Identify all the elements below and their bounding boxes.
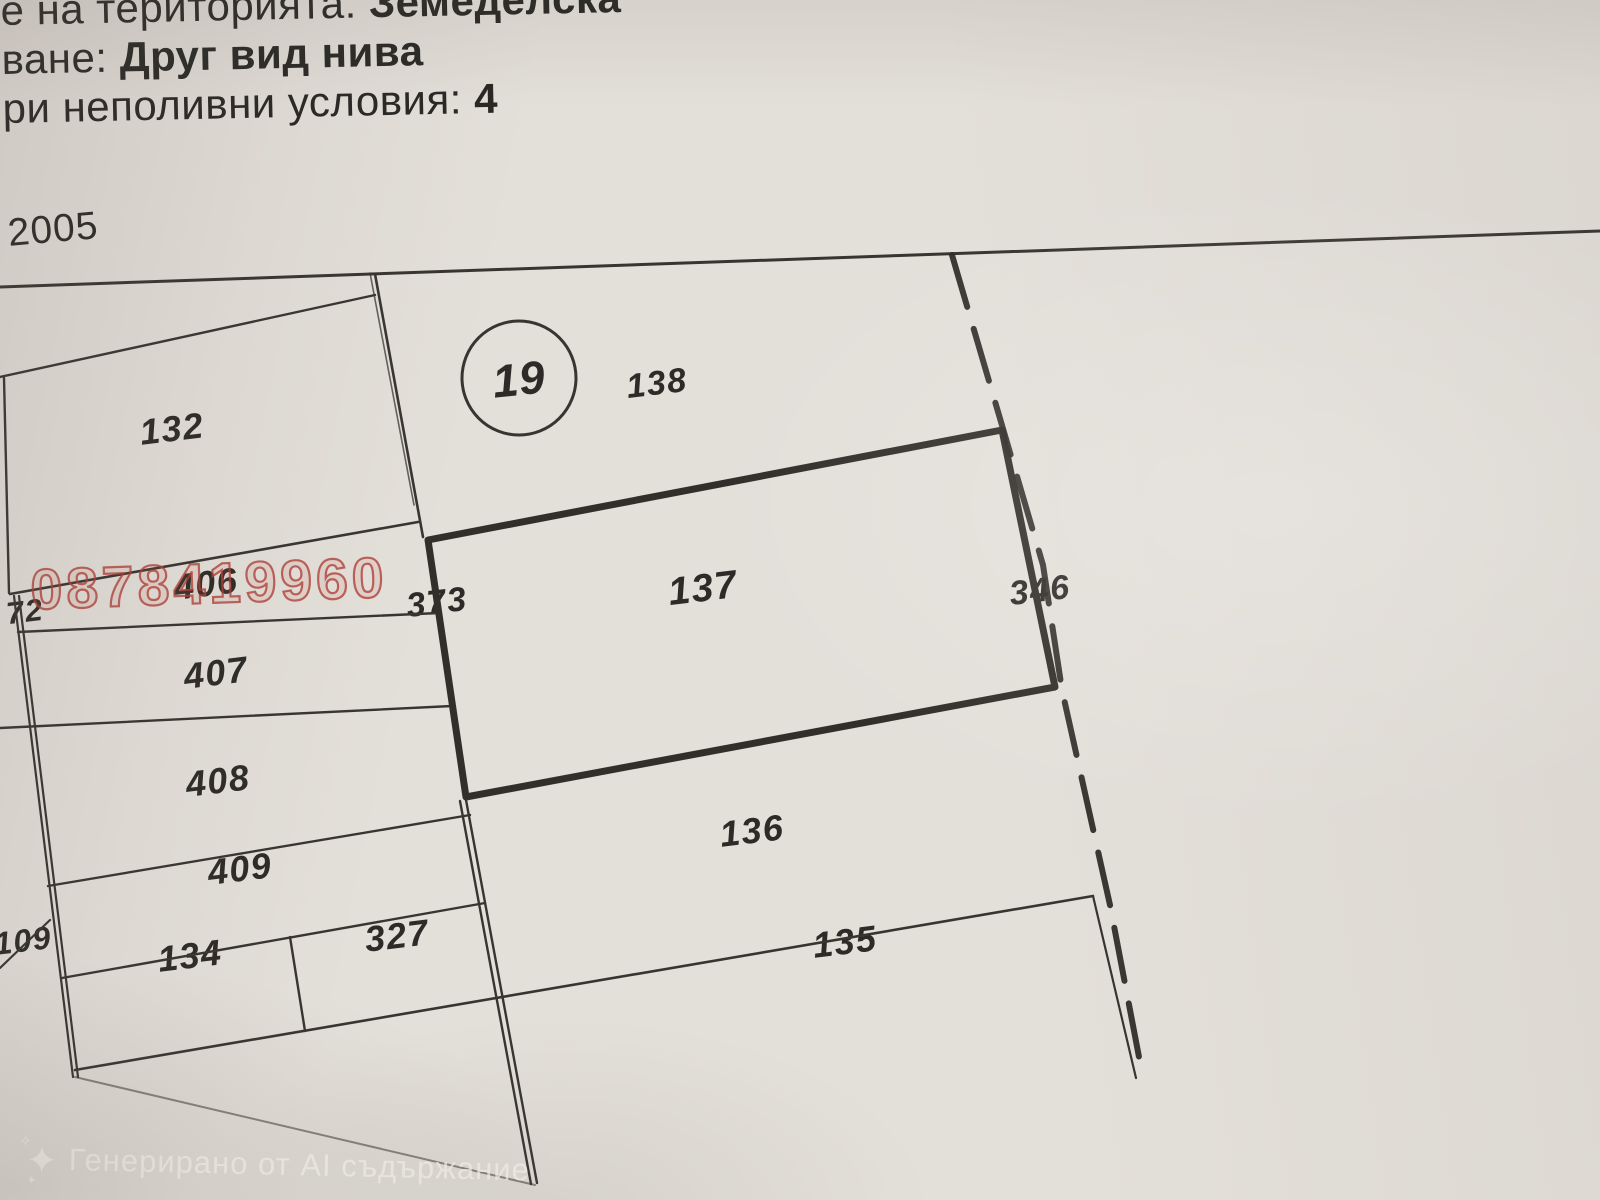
parcel-number-label: 327 xyxy=(362,911,431,961)
parcel-number-label: 346 xyxy=(1007,568,1073,614)
header-text-segment: 4 xyxy=(474,75,499,122)
parcel-number-label: 134 xyxy=(155,931,224,981)
document-header: е на територията: Земеделскаване: Друг в… xyxy=(0,0,624,133)
parcel-number-label: 135 xyxy=(810,917,879,967)
parcel-number-label: 408 xyxy=(183,756,252,806)
parcel-number-label: 407 xyxy=(181,648,250,698)
phone-watermark: 0878419960 xyxy=(29,545,388,623)
cadastral-sketch-photo: е на територията: Земеделскаване: Друг в… xyxy=(0,0,1600,1200)
sparkles-icon: ✦✧✦ xyxy=(26,1142,60,1181)
parcel-number-label: 132 xyxy=(137,404,206,454)
parcel-number-label: 373 xyxy=(404,580,470,626)
parcel-number-label: 136 xyxy=(717,806,786,856)
header-text-segment: Земеделска xyxy=(368,0,621,26)
header-text-segment: ване: xyxy=(1,34,120,83)
map-year-label: 2005 xyxy=(6,204,100,256)
parcel-number-label: 138 xyxy=(624,361,690,407)
header-text-segment: Друг вид нива xyxy=(119,27,424,80)
parcel-number-label: 109 xyxy=(0,919,54,963)
zone-number-label: 19 xyxy=(490,349,549,408)
header-text-segment: ри неполивни условия: xyxy=(2,75,474,132)
parcel-number-label: 137 xyxy=(666,563,740,615)
parcel-number-label: 409 xyxy=(205,844,274,894)
